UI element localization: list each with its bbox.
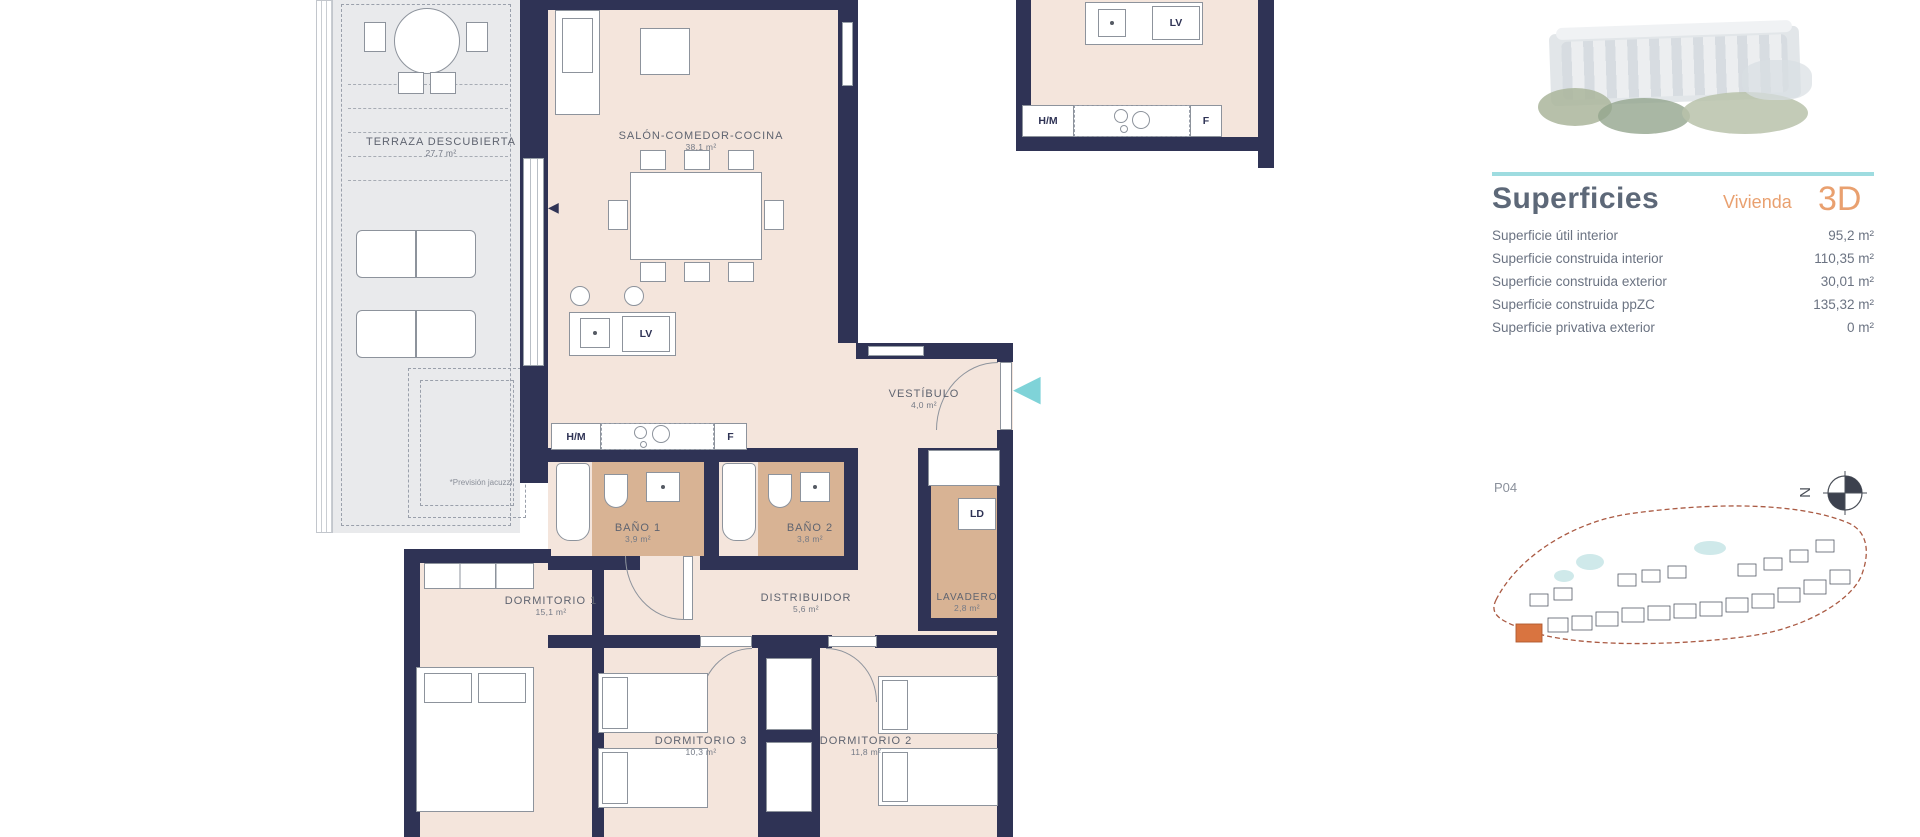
terrace-door-arrow-icon: ◀: [548, 200, 559, 214]
wall-segment: [404, 549, 551, 563]
dishwasher-label: LV: [640, 328, 653, 340]
room-name: BAÑO 2: [787, 522, 833, 534]
door-leaf: [700, 636, 752, 647]
washer-label: H/M: [566, 431, 585, 443]
bathtub: [722, 463, 756, 541]
door-leaf: [683, 556, 693, 620]
wall-segment: [548, 635, 700, 648]
cooktop-burner-icon: [1114, 109, 1128, 123]
washer-label: H/M: [1038, 115, 1057, 127]
area-value: 0 m²: [1847, 320, 1874, 335]
dining-chair: [640, 262, 666, 282]
sun-lounger: [356, 310, 476, 358]
jacuzzi-note: *Previsión jacuzzi: [442, 478, 520, 488]
room-label-dormitorio3: DORMITORIO 3 10,3 m²: [641, 735, 761, 757]
room-area: 2,8 m²: [912, 604, 1022, 614]
pillow: [424, 673, 472, 703]
room-name: LAVADERO: [937, 592, 998, 603]
area-label: Superficie construida ppZC: [1492, 297, 1655, 312]
wall-segment: [700, 556, 858, 570]
cooktop-burner-icon: [634, 426, 647, 439]
pillow: [882, 752, 908, 802]
room-label-lavadero: LAVADERO 2,8 m²: [912, 592, 1022, 613]
dining-chair: [728, 150, 754, 170]
wardrobe: [424, 563, 534, 589]
site-plan: [1478, 478, 1880, 684]
floorplan-page: *Previsión jacuzzi ◀: [0, 0, 1920, 837]
area-value: 110,35 m²: [1814, 251, 1874, 266]
building-rendering: [1532, 0, 1828, 142]
dining-chair: [684, 150, 710, 170]
floor-plan: *Previsión jacuzzi ◀: [0, 0, 1300, 837]
dining-chair: [764, 200, 784, 230]
room-area: 4,0 m²: [864, 401, 984, 411]
wall-segment: [875, 635, 1013, 648]
area-value: 95,2 m²: [1828, 228, 1874, 243]
room-area: 11,8 m²: [806, 748, 926, 758]
room-name: DISTRIBUIDOR: [761, 592, 852, 604]
panel-title: Superficies: [1492, 182, 1659, 216]
room-label-dormitorio1: DORMITORIO 1 15,1 m²: [486, 595, 616, 617]
room-name: DORMITORIO 2: [820, 735, 912, 747]
closet-interior: [766, 658, 812, 730]
pillow: [882, 680, 908, 730]
wall-segment: [1016, 137, 1274, 151]
room-label-distribuidor: DISTRIBUIDOR 5,6 m²: [736, 592, 876, 614]
room-name: DORMITORIO 1: [505, 595, 597, 607]
room-label-dormitorio2: DORMITORIO 2 11,8 m²: [806, 735, 926, 757]
area-row: Superficie construida interior 110,35 m²: [1492, 251, 1874, 266]
room-area: 3,9 m²: [583, 535, 693, 545]
area-row: Superficie útil interior 95,2 m²: [1492, 228, 1874, 243]
wall-segment: [997, 343, 1013, 362]
room-name: TERRAZA DESCUBIERTA: [366, 136, 516, 148]
area-value: 135,32 m²: [1813, 297, 1874, 312]
dining-chair: [728, 262, 754, 282]
area-label: Superficie construida interior: [1492, 251, 1663, 266]
room-label-bano1: BAÑO 1 3,9 m²: [583, 522, 693, 544]
wall-segment: [704, 448, 719, 570]
panel-divider: [1492, 172, 1874, 176]
sun-lounger: [356, 230, 476, 278]
dishwasher-box: LV: [622, 316, 670, 352]
area-value: 30,01 m²: [1821, 274, 1874, 289]
dining-table: [630, 172, 762, 260]
laundry-ld-box: LD: [958, 498, 996, 530]
sink-icon: [580, 318, 610, 348]
cooktop-burner-icon: [640, 441, 647, 448]
window: [868, 346, 924, 356]
washer-box: H/M: [551, 423, 601, 450]
room-area: 3,8 m²: [755, 535, 865, 545]
pillow: [602, 677, 628, 729]
area-label: Superficie útil interior: [1492, 228, 1618, 243]
entrance-door-leaf: [1000, 362, 1012, 430]
fridge-box: F: [1190, 105, 1222, 137]
washbasin: [646, 472, 680, 502]
washbasin: [800, 472, 830, 502]
laundry-appliance: [928, 450, 1000, 486]
window: [842, 22, 853, 86]
pillow: [478, 673, 526, 703]
stool: [570, 286, 590, 306]
fridge-box: F: [714, 423, 747, 450]
sink-icon: [1098, 9, 1126, 37]
terrace-table: [394, 8, 460, 74]
area-label: Superficie privativa exterior: [1492, 320, 1655, 335]
ld-label: LD: [970, 508, 984, 520]
dining-chair: [640, 150, 666, 170]
pillow: [602, 752, 628, 804]
room-label-salon: SALÓN-COMEDOR-COCINA 38,1 m²: [601, 130, 801, 152]
room-name: DORMITORIO 3: [655, 735, 747, 747]
dishwasher-label: LV: [1170, 17, 1183, 29]
room-area: 27,7 m²: [351, 149, 531, 159]
dining-chair: [608, 200, 628, 230]
terrace-balustrade: [316, 0, 333, 533]
dishwasher-box: LV: [1152, 6, 1200, 40]
room-area: 5,6 m²: [736, 605, 876, 615]
fridge-label: F: [1203, 115, 1209, 127]
room-label-vestibulo: VESTÍBULO 4,0 m²: [864, 388, 984, 410]
toilet: [604, 474, 628, 508]
room-area: 38,1 m²: [601, 143, 801, 153]
terrace-chair: [398, 72, 424, 94]
fridge-label: F: [727, 431, 733, 443]
terrace-chair: [364, 22, 386, 52]
stool: [624, 286, 644, 306]
unit-type: 3D: [1818, 180, 1861, 219]
room-label-terraza: TERRAZA DESCUBIERTA 27,7 m²: [351, 136, 531, 158]
toilet: [768, 474, 792, 508]
room-label-bano2: BAÑO 2 3,8 m²: [755, 522, 865, 544]
cooktop-burner-icon: [1132, 111, 1150, 129]
entrance-arrow-icon: ◀: [1013, 370, 1041, 406]
room-name: SALÓN-COMEDOR-COCINA: [619, 130, 784, 142]
area-row: Superficie construida exterior 30,01 m²: [1492, 274, 1874, 289]
info-panel: Superficies Vivienda 3D Superficie útil …: [1470, 0, 1920, 837]
terrace-chair: [466, 22, 488, 52]
room-name: BAÑO 1: [615, 522, 661, 534]
area-row: Superficie privativa exterior 0 m²: [1492, 320, 1874, 335]
terrace-glass-door: [523, 158, 544, 366]
cooktop-burner-icon: [1120, 125, 1128, 133]
wall-segment: [548, 448, 858, 462]
wall-segment: [997, 430, 1013, 837]
dining-chair: [684, 262, 710, 282]
panel-subtitle: Vivienda: [1723, 192, 1792, 213]
washer-box: H/M: [1022, 105, 1074, 137]
highlighted-unit: [1516, 624, 1542, 642]
sideboard: [640, 28, 690, 75]
wall-segment: [918, 618, 1013, 631]
wall-segment: [844, 448, 858, 570]
door-leaf: [828, 636, 877, 647]
cooktop-burner-icon: [652, 425, 670, 443]
area-label: Superficie construida exterior: [1492, 274, 1667, 289]
wall-segment: [752, 635, 832, 648]
wall-segment: [548, 0, 840, 10]
area-row: Superficie construida ppZC 135,32 m²: [1492, 297, 1874, 312]
room-name: VESTÍBULO: [889, 388, 960, 400]
kitchen-tall-cabinet: [562, 18, 593, 73]
room-area: 10,3 m²: [641, 748, 761, 758]
terrace-chair: [430, 72, 456, 94]
room-area: 15,1 m²: [486, 608, 616, 618]
